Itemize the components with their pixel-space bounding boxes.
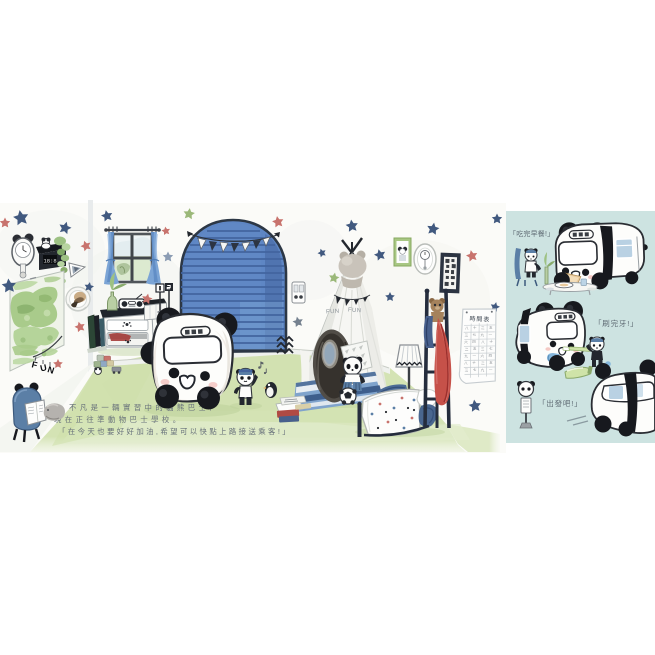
svg-text:五: 五 [489,361,493,365]
svg-text:二: 二 [465,347,469,351]
svg-text:九: 九 [464,353,468,358]
svg-text:九: 九 [480,332,484,337]
svg-text:五: 五 [489,326,493,330]
svg-text:三: 三 [481,347,485,351]
svg-text:七: 七 [473,367,477,372]
svg-text:FUN: FUN [348,307,362,314]
svg-text:「在今天也要好好加油,希望可以快點上路接送乘客!」: 「在今天也要好好加油,希望可以快點上路接送乘客!」 [58,427,292,436]
svg-text:十: 十 [473,325,477,330]
svg-text:「刷完牙!」: 「刷完牙!」 [594,318,638,328]
svg-text:七: 七 [489,346,493,351]
svg-text:十: 十 [472,360,476,365]
svg-text:18:8: 18:8 [44,258,57,265]
svg-text:FUN: FUN [326,309,340,316]
svg-text:四: 四 [488,354,492,358]
svg-text:四: 四 [472,340,476,344]
svg-text:「出發吧!」: 「出發吧!」 [538,398,582,408]
svg-text:三: 三 [465,368,469,372]
svg-text:「吃完早餐!」: 「吃完早餐!」 [509,229,554,238]
svg-text:一: 一 [489,368,493,372]
svg-text:一: 一 [489,333,493,337]
svg-text:五: 五 [473,347,477,351]
svg-text:三: 三 [464,333,468,337]
svg-text:六: 六 [480,353,484,358]
svg-text:七: 七 [472,332,476,337]
svg-text:八: 八 [465,326,469,330]
svg-text:九: 九 [481,367,485,372]
svg-text:八: 八 [464,361,468,365]
svg-text:十: 十 [489,339,493,344]
svg-text:二: 二 [481,326,485,330]
svg-text:現在正往準動物巴士學校。: 現在正往準動物巴士學校。 [54,415,184,424]
svg-text:八: 八 [481,340,485,344]
svg-text:不凡是一輛實習中的貓熊巴士,: 不凡是一輛實習中的貓熊巴士, [69,403,215,412]
svg-text:二: 二 [481,361,485,365]
svg-text:六: 六 [464,339,468,344]
svg-text:一: 一 [472,354,476,358]
